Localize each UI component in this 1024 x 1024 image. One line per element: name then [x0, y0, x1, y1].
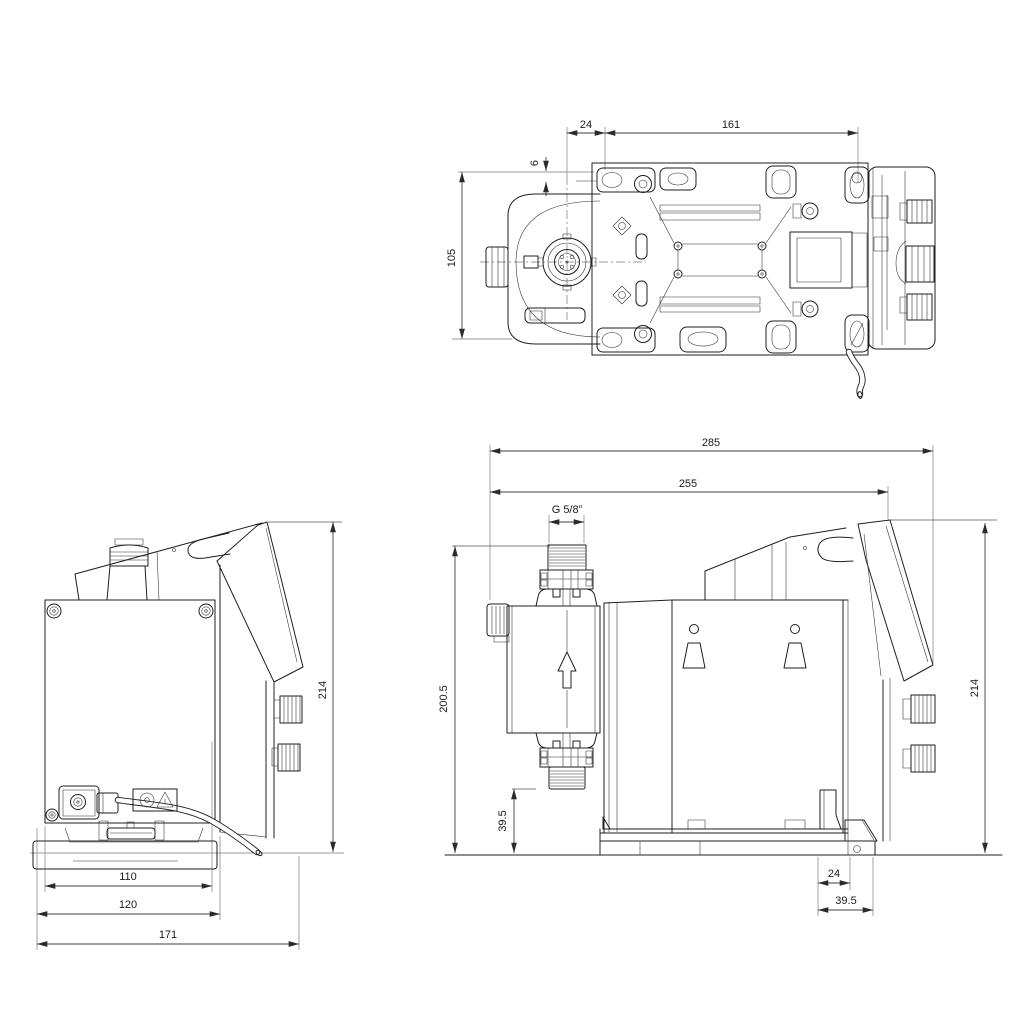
technical-drawing-canvas: 24 161 6 105	[0, 0, 1024, 1024]
motor-knob-top	[486, 247, 538, 287]
corner-screw-top-left	[47, 604, 61, 618]
control-housing-edge-top	[868, 167, 935, 349]
dim-label-6: 6	[529, 160, 541, 166]
motor-housing-top	[508, 194, 600, 344]
dim-label-105: 105	[446, 249, 458, 267]
rear-panel-side	[883, 678, 890, 841]
discharge-valve-side	[532, 545, 600, 606]
suction-valve-side	[532, 733, 600, 789]
power-cable-top	[849, 352, 863, 399]
side-panel-rear	[220, 565, 274, 838]
connector-knob-rear-1	[274, 696, 302, 723]
dim-label-bottom-24: 24	[828, 868, 840, 880]
dim-label-120: 120	[119, 899, 137, 911]
keyhole-slot-1	[683, 625, 705, 669]
mounting-plate	[592, 163, 869, 355]
dim-label-39-5-left: 39.5	[497, 810, 509, 831]
vent-cap-rear	[107, 539, 148, 600]
side-view: 285 255 G 5/8” 200.5 214 39.5 24 39.5	[438, 437, 1002, 916]
connector-knob-rear-2	[272, 744, 300, 771]
pump-body-side	[600, 600, 848, 855]
dim-label-bottom-39-5: 39.5	[835, 895, 856, 907]
connector-knob-top-2	[896, 241, 934, 284]
control-panel-arm-rear	[188, 522, 303, 682]
connector-knob-side-2	[903, 745, 935, 772]
dim-label-200-5: 200.5	[438, 685, 450, 713]
connector-knob-side-1	[903, 695, 935, 723]
corner-screw-top-right	[199, 604, 213, 618]
base-side	[600, 817, 875, 855]
rear-view: 214 110 120 171	[30, 522, 344, 950]
thread-size-label: G 5/8”	[552, 504, 583, 516]
keyhole-slot-2	[784, 625, 806, 669]
motor-hood-side	[705, 528, 853, 600]
top-cover-rear	[75, 523, 262, 600]
pump-dimension-drawing: 24 161 6 105	[0, 0, 1024, 1024]
base-rear	[33, 821, 217, 869]
dim-label-161: 161	[722, 119, 740, 131]
backplate-rear	[45, 600, 215, 823]
suction-knob-side	[487, 604, 509, 642]
dim-label-side-214: 214	[969, 679, 981, 697]
dim-label-255: 255	[679, 478, 697, 490]
dim-label-285: 285	[702, 437, 720, 449]
dim-label-top-24: 24	[580, 119, 592, 131]
cable-gland-rear	[59, 786, 118, 819]
top-view: 24 161 6 105	[446, 119, 935, 399]
hmi-arm-side	[858, 520, 933, 681]
dim-label-110: 110	[119, 871, 137, 883]
dosing-head-side	[507, 606, 600, 733]
dim-label-171: 171	[159, 929, 177, 941]
corner-screw-bottom-left	[46, 809, 58, 821]
dim-label-rear-214: 214	[317, 681, 329, 699]
plate-rib-network	[613, 197, 867, 323]
flow-direction-arrow	[558, 610, 576, 728]
